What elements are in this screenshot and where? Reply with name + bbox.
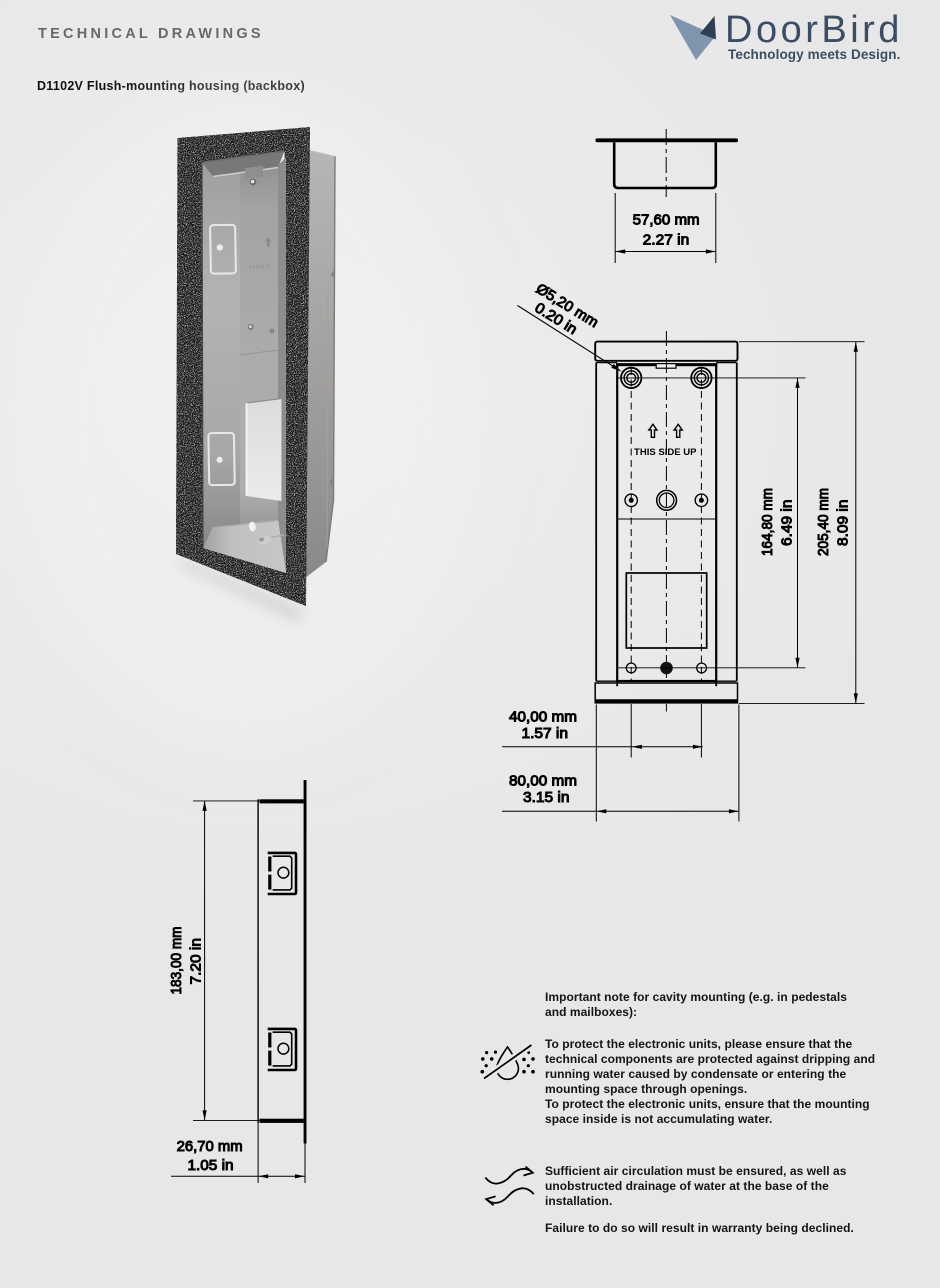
svg-text:7.20 in: 7.20 in	[189, 938, 205, 985]
svg-text:6.49 in: 6.49 in	[780, 500, 796, 547]
svg-text:183,00 mm: 183,00 mm	[169, 927, 185, 995]
svg-text:205,40 mm: 205,40 mm	[816, 488, 832, 556]
svg-text:26,70 mm: 26,70 mm	[177, 1139, 243, 1155]
svg-text:2.27 in: 2.27 in	[643, 233, 690, 249]
svg-text:1.05 in: 1.05 in	[188, 1158, 234, 1174]
svg-text:8.09 in: 8.09 in	[836, 500, 852, 547]
svg-text:1.57 in: 1.57 in	[522, 726, 569, 742]
svg-text:3.15 in: 3.15 in	[523, 790, 570, 806]
svg-text:40,00 mm: 40,00 mm	[509, 710, 577, 726]
svg-text:164,80 mm: 164,80 mm	[760, 488, 776, 556]
svg-text:THIS SIDE UP: THIS SIDE UP	[634, 447, 697, 457]
svg-text:57,60 mm: 57,60 mm	[633, 213, 700, 229]
svg-text:80,00 mm: 80,00 mm	[509, 774, 577, 790]
